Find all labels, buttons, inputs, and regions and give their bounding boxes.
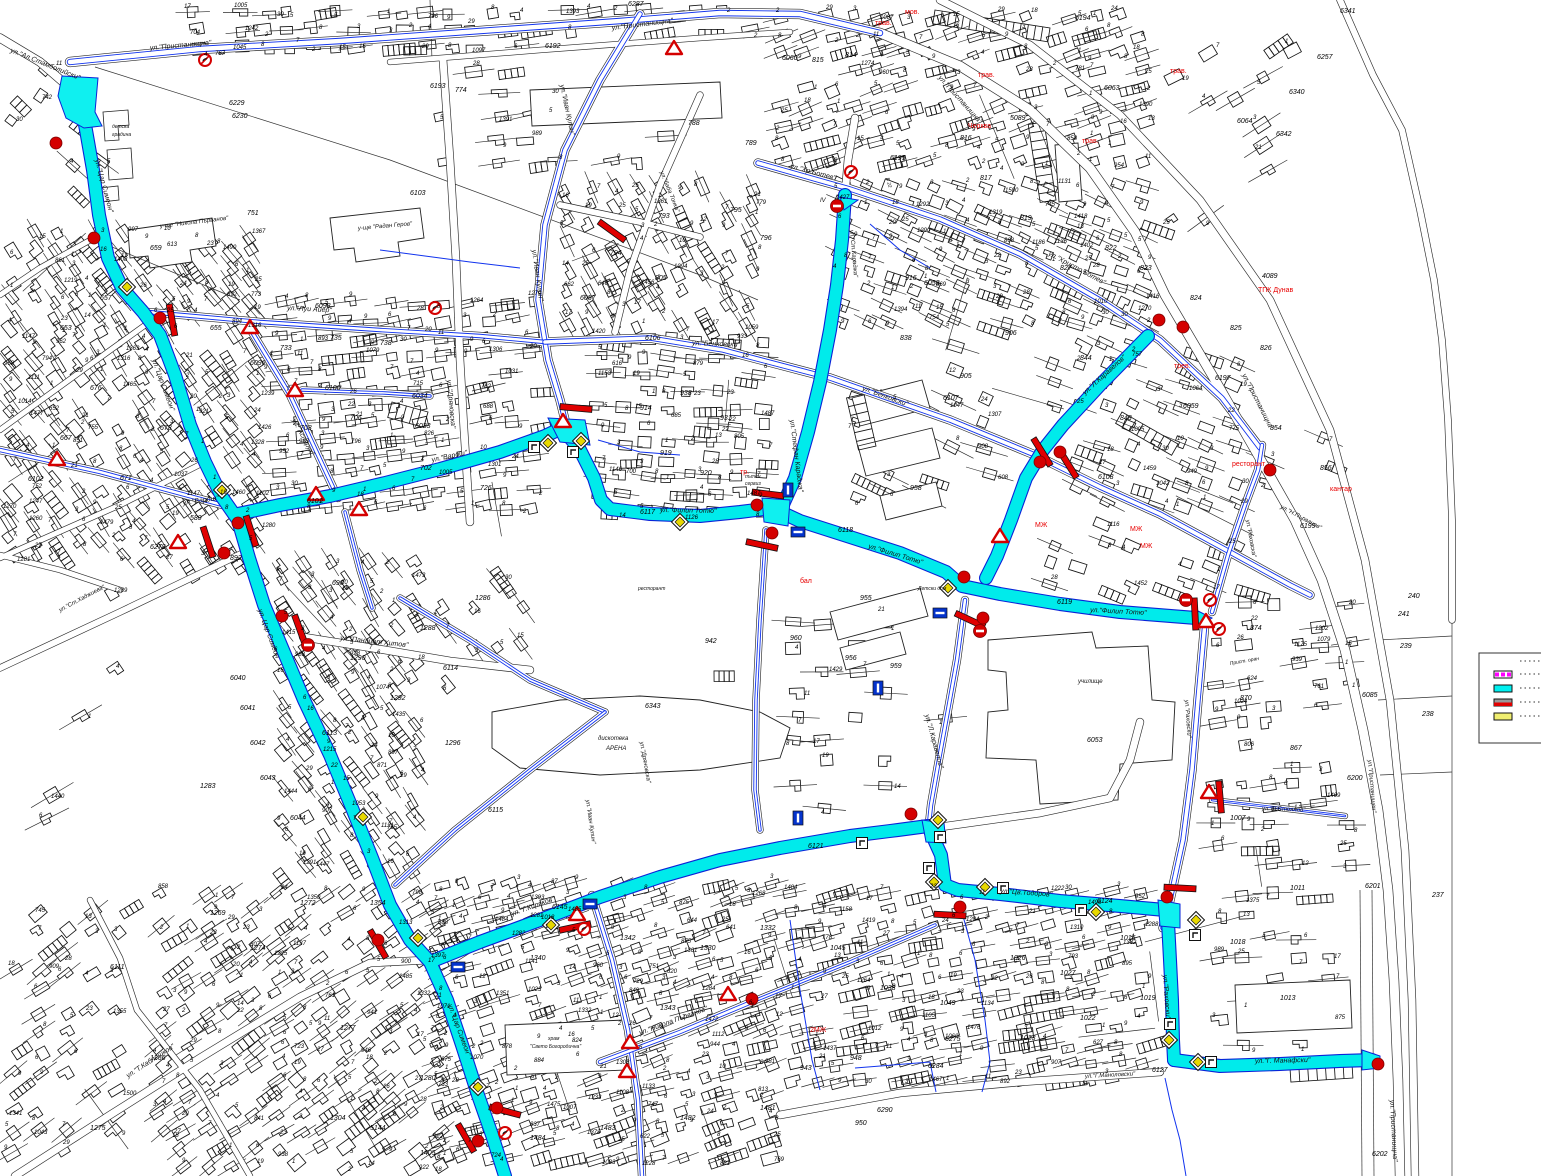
svg-text:10: 10 [480, 445, 487, 451]
svg-text:1239: 1239 [261, 391, 275, 397]
svg-text:861: 861 [55, 258, 65, 264]
svg-text:641: 641 [726, 925, 736, 931]
svg-text:1415: 1415 [282, 630, 296, 636]
svg-text:2: 2 [554, 1075, 559, 1081]
svg-text:29: 29 [825, 5, 833, 11]
svg-text:25: 25 [901, 217, 909, 223]
svg-text:2: 2 [866, 281, 871, 287]
svg-text:15: 15 [343, 776, 350, 782]
svg-text:1: 1 [511, 1098, 514, 1104]
svg-text:2: 2 [347, 730, 352, 736]
svg-text:733: 733 [280, 345, 292, 352]
svg-text:22: 22 [330, 763, 338, 769]
svg-text:960: 960 [790, 635, 802, 642]
svg-text:1228: 1228 [642, 1161, 656, 1167]
svg-text:1: 1 [1244, 1003, 1247, 1009]
svg-text:794: 794 [610, 250, 622, 257]
svg-text:19: 19 [1240, 382, 1247, 388]
svg-text:дискотека: дискотека [598, 736, 629, 742]
svg-text:23: 23 [60, 316, 68, 322]
svg-text:2: 2 [620, 1108, 625, 1114]
svg-text:2: 2 [1260, 483, 1265, 489]
svg-text:1247: 1247 [29, 499, 43, 505]
svg-text:АРЕНА: АРЕНА [605, 746, 626, 752]
svg-text:968: 968 [4, 361, 15, 367]
svg-text:895: 895 [1122, 961, 1133, 967]
svg-text:919: 919 [660, 450, 672, 457]
svg-text:821: 821 [720, 1161, 730, 1167]
svg-text:18: 18 [1031, 8, 1038, 14]
svg-text:2: 2 [389, 667, 394, 673]
svg-text:16: 16 [277, 668, 284, 674]
svg-text:738: 738 [380, 340, 392, 347]
svg-text:938: 938 [278, 1152, 289, 1158]
svg-text:6121: 6121 [808, 843, 824, 850]
svg-text:1019: 1019 [1140, 995, 1156, 1002]
svg-text:2: 2 [159, 925, 164, 931]
svg-text:2: 2 [1025, 939, 1030, 945]
svg-text:6145: 6145 [552, 904, 568, 911]
svg-text:1005: 1005 [234, 3, 248, 9]
svg-text:949: 949 [1187, 469, 1198, 475]
svg-text:1: 1 [156, 543, 159, 549]
svg-text:25: 25 [721, 917, 729, 923]
svg-text:2: 2 [1052, 61, 1057, 67]
svg-text:23: 23 [726, 390, 734, 396]
svg-text:6287: 6287 [628, 1, 645, 8]
svg-text:6044: 6044 [290, 815, 306, 822]
svg-text:1281: 1281 [17, 557, 30, 563]
svg-text:6103: 6103 [410, 190, 426, 197]
svg-text:19: 19 [228, 282, 235, 288]
svg-text:1289: 1289 [114, 588, 128, 594]
svg-text:849: 849 [629, 988, 640, 994]
svg-text:1316: 1316 [117, 356, 131, 362]
svg-text:2: 2 [775, 8, 780, 14]
svg-text:1047: 1047 [950, 403, 964, 409]
svg-text:25: 25 [1084, 256, 1092, 262]
svg-text:2: 2 [909, 284, 914, 290]
svg-text:858: 858 [158, 884, 169, 890]
svg-text:2: 2 [379, 589, 384, 595]
svg-text:676: 676 [90, 385, 102, 392]
svg-text:1: 1 [10, 283, 13, 289]
svg-text:939: 939 [1292, 657, 1303, 663]
svg-text:238: 238 [1421, 711, 1434, 718]
svg-text:1467: 1467 [929, 1077, 943, 1083]
svg-text:793: 793 [658, 213, 670, 220]
svg-text:2: 2 [855, 33, 860, 39]
svg-text:1275: 1275 [90, 1125, 106, 1132]
svg-text:2: 2 [420, 456, 425, 462]
svg-text:620: 620 [667, 969, 678, 975]
svg-text:ресторант: ресторант [1232, 461, 1266, 468]
svg-text:779: 779 [756, 200, 767, 206]
svg-text:1288: 1288 [420, 625, 436, 632]
svg-text:14: 14 [368, 1161, 375, 1167]
svg-text:2: 2 [1146, 318, 1151, 324]
svg-text:1277: 1277 [340, 1025, 357, 1032]
svg-text:17: 17 [775, 994, 782, 1000]
svg-text:1: 1 [887, 972, 890, 978]
svg-text:1146: 1146 [609, 467, 623, 473]
svg-text:1116: 1116 [1107, 522, 1120, 528]
svg-text:1479: 1479 [100, 520, 114, 526]
svg-text:1475: 1475 [547, 1102, 561, 1108]
svg-text:16: 16 [742, 353, 749, 359]
svg-text:1288: 1288 [1145, 922, 1159, 928]
svg-text:кантар: кантар [1330, 486, 1352, 493]
svg-text:1408: 1408 [114, 257, 128, 263]
svg-text:745: 745 [35, 908, 46, 914]
svg-text:1477: 1477 [30, 411, 44, 417]
svg-text:997: 997 [128, 227, 139, 233]
svg-text:755: 755 [88, 425, 99, 431]
svg-text:25: 25 [254, 277, 262, 283]
svg-text:1: 1 [666, 475, 669, 481]
svg-text:854: 854 [1270, 425, 1282, 432]
svg-text:989: 989 [1214, 947, 1225, 953]
svg-text:20: 20 [1348, 600, 1356, 606]
svg-text:6342: 6342 [1276, 131, 1292, 138]
svg-text:2: 2 [726, 8, 731, 14]
svg-text:28: 28 [451, 1078, 459, 1084]
svg-text:24: 24 [179, 281, 187, 287]
svg-text:1007: 1007 [1230, 815, 1247, 822]
svg-text:2: 2 [720, 265, 725, 271]
svg-text:867: 867 [1290, 745, 1303, 752]
svg-text:2МЖ: 2МЖ [810, 1027, 827, 1034]
svg-text:6199: 6199 [1300, 523, 1316, 530]
svg-text:МЖ: МЖ [1130, 526, 1143, 533]
svg-text:806: 806 [1244, 742, 1255, 748]
svg-text:23: 23 [242, 925, 250, 931]
svg-text:29: 29 [421, 44, 429, 50]
svg-text:6108: 6108 [1098, 474, 1114, 481]
svg-text:1472: 1472 [705, 1017, 719, 1023]
svg-text:17: 17 [184, 4, 191, 10]
svg-text:1363: 1363 [126, 346, 140, 352]
svg-text:1158: 1158 [839, 907, 853, 913]
svg-text:1037: 1037 [174, 472, 188, 478]
svg-text:2: 2 [373, 1079, 378, 1085]
svg-text:6059: 6059 [1183, 403, 1199, 410]
svg-text:1: 1 [300, 337, 303, 343]
svg-text:1: 1 [186, 924, 189, 930]
svg-text:1418: 1418 [1074, 214, 1088, 220]
svg-text:14: 14 [562, 261, 569, 267]
svg-text:900: 900 [401, 959, 412, 965]
svg-text:11: 11 [985, 1074, 991, 1080]
svg-text:12: 12 [479, 974, 486, 980]
svg-text:1: 1 [1203, 495, 1206, 501]
svg-text:6201: 6201 [1365, 883, 1381, 890]
svg-text:6230: 6230 [232, 113, 248, 120]
svg-text:1: 1 [891, 626, 894, 632]
svg-text:742: 742 [42, 95, 53, 101]
svg-text:1: 1 [1102, 1023, 1105, 1029]
svg-text:848: 848 [1120, 415, 1132, 422]
svg-text:6106: 6106 [645, 335, 661, 342]
svg-text:1: 1 [864, 200, 867, 206]
svg-text:трав.: трав. [875, 20, 892, 27]
svg-text:1419: 1419 [862, 918, 876, 924]
svg-text:1042: 1042 [1156, 481, 1170, 487]
svg-text:1296: 1296 [445, 740, 461, 747]
svg-text:25: 25 [631, 183, 639, 189]
svg-text:19: 19 [822, 753, 829, 759]
svg-text:1481: 1481 [760, 1105, 776, 1112]
svg-text:1: 1 [1045, 161, 1048, 167]
svg-text:894: 894 [232, 319, 243, 325]
svg-text:1460: 1460 [232, 490, 246, 496]
svg-text:24: 24 [980, 397, 988, 403]
svg-text:28: 28 [711, 459, 719, 465]
svg-text:11: 11 [804, 691, 810, 697]
svg-text:1292: 1292 [916, 202, 930, 208]
svg-text:1023: 1023 [1020, 1035, 1036, 1042]
svg-text:778: 778 [822, 935, 833, 941]
svg-text:29: 29 [995, 294, 1003, 300]
svg-text:616: 616 [612, 361, 623, 367]
svg-text:729: 729 [633, 979, 644, 985]
svg-text:16: 16 [1120, 119, 1127, 125]
svg-text:906: 906 [1005, 330, 1017, 337]
svg-text:26: 26 [349, 389, 357, 395]
svg-text:30: 30 [552, 89, 559, 95]
svg-text:1: 1 [1142, 984, 1145, 990]
svg-text:28: 28 [416, 306, 424, 312]
svg-text:2: 2 [1091, 992, 1096, 998]
svg-text:657: 657 [100, 295, 113, 302]
svg-text:1290: 1290 [917, 228, 931, 234]
svg-text:6193: 6193 [430, 83, 446, 90]
svg-text:589: 589 [190, 515, 202, 522]
svg-text:893: 893 [318, 336, 329, 342]
svg-text:817: 817 [980, 175, 993, 182]
svg-text:907: 907 [322, 808, 333, 814]
svg-text:1354: 1354 [370, 900, 386, 907]
svg-text:652: 652 [49, 406, 60, 412]
svg-text:1045: 1045 [233, 45, 247, 51]
svg-text:1268: 1268 [752, 891, 766, 897]
svg-text:773: 773 [251, 292, 262, 298]
svg-text:22: 22 [236, 1008, 244, 1014]
svg-text:18: 18 [366, 1055, 373, 1061]
svg-text:1: 1 [1078, 48, 1081, 54]
svg-text:1: 1 [1294, 805, 1297, 811]
svg-text:1031: 1031 [505, 369, 518, 375]
svg-text:ул."Г. Манафски": ул."Г. Манафски" [1254, 1057, 1311, 1065]
svg-text:1071: 1071 [437, 1004, 450, 1010]
svg-text:30: 30 [1065, 885, 1072, 891]
svg-text:6202: 6202 [1372, 1151, 1388, 1158]
svg-text:6200: 6200 [1347, 775, 1363, 782]
svg-text:983: 983 [295, 652, 306, 658]
svg-text:ул."Филип Тотю": ул."Филип Тотю" [659, 507, 717, 515]
svg-text:905: 905 [960, 373, 972, 380]
svg-text:1: 1 [1052, 257, 1055, 263]
svg-text:1328: 1328 [251, 440, 265, 446]
svg-text:897: 897 [388, 750, 399, 756]
svg-text:21: 21 [599, 1064, 607, 1070]
svg-text:237: 237 [1431, 892, 1445, 899]
svg-text:2: 2 [181, 1008, 186, 1014]
svg-text:6034: 6034 [412, 393, 428, 400]
svg-text:2: 2 [439, 1105, 444, 1111]
svg-text:1496: 1496 [1088, 900, 1102, 906]
svg-text:30: 30 [505, 575, 512, 581]
svg-text:1225: 1225 [274, 951, 288, 957]
svg-text:13: 13 [834, 953, 841, 959]
svg-text:796: 796 [428, 14, 439, 20]
svg-text:1: 1 [956, 242, 959, 248]
svg-text:трав.: трав. [1082, 138, 1099, 145]
svg-text:14: 14 [894, 784, 901, 790]
svg-text:17: 17 [1099, 460, 1106, 466]
svg-text:1476: 1476 [967, 1025, 981, 1031]
svg-text:1: 1 [387, 9, 390, 15]
svg-text:2: 2 [513, 1066, 518, 1072]
svg-text:892: 892 [1000, 1079, 1011, 1085]
svg-text:24: 24 [511, 454, 519, 460]
svg-text:2: 2 [408, 23, 413, 29]
svg-text:1264: 1264 [470, 298, 484, 304]
svg-text:1131: 1131 [1058, 179, 1071, 185]
svg-text:12: 12 [1302, 861, 1309, 867]
svg-text:1: 1 [959, 1052, 962, 1058]
svg-text:6113: 6113 [322, 730, 337, 737]
svg-text:21: 21 [753, 192, 761, 198]
svg-text:16: 16 [744, 950, 751, 956]
svg-text:1286: 1286 [475, 595, 491, 602]
svg-text:1112: 1112 [712, 1032, 725, 1038]
svg-text:6192: 6192 [545, 43, 561, 50]
svg-text:700: 700 [626, 469, 637, 475]
svg-text:26: 26 [1025, 974, 1033, 980]
svg-text:1: 1 [515, 1086, 518, 1092]
svg-text:798: 798 [412, 890, 423, 896]
svg-text:723: 723 [294, 1044, 305, 1050]
svg-text:958: 958 [910, 485, 922, 492]
svg-text:688: 688 [483, 404, 494, 410]
svg-text:794: 794 [42, 356, 53, 362]
svg-text:10: 10 [679, 238, 686, 244]
svg-text:6042: 6042 [250, 740, 266, 747]
svg-text:28: 28 [1022, 290, 1030, 296]
svg-text:2: 2 [1146, 86, 1151, 92]
svg-text:1332: 1332 [578, 1008, 592, 1014]
svg-text:989: 989 [532, 131, 543, 137]
svg-text:1456: 1456 [641, 280, 655, 286]
svg-text:1: 1 [939, 720, 942, 726]
svg-text:2: 2 [471, 1044, 476, 1050]
svg-text:2: 2 [245, 508, 250, 514]
svg-text:1111: 1111 [28, 375, 40, 381]
svg-text:1291: 1291 [303, 860, 316, 866]
svg-text:6341: 6341 [1340, 8, 1356, 15]
svg-text:914: 914 [640, 405, 652, 412]
svg-text:21: 21 [185, 353, 193, 359]
svg-text:1007: 1007 [563, 1105, 577, 1111]
svg-text:825: 825 [1230, 325, 1242, 332]
svg-text:20: 20 [424, 327, 432, 333]
svg-text:2: 2 [389, 623, 394, 629]
svg-text:23: 23 [279, 1130, 287, 1136]
svg-text:30: 30 [1162, 446, 1169, 452]
svg-text:871: 871 [377, 763, 387, 769]
svg-text:1402: 1402 [1080, 243, 1094, 249]
svg-text:1500: 1500 [123, 1091, 137, 1097]
svg-text:1014: 1014 [18, 399, 32, 405]
svg-text:30: 30 [16, 117, 23, 123]
svg-text:1378: 1378 [587, 1130, 601, 1136]
svg-text:1316: 1316 [248, 323, 262, 329]
svg-text:28: 28 [1050, 575, 1058, 581]
svg-text:1306: 1306 [489, 347, 503, 353]
svg-text:1012: 1012 [868, 1026, 882, 1032]
svg-text:27: 27 [550, 879, 558, 885]
svg-text:2: 2 [1260, 827, 1265, 833]
svg-text:6063: 6063 [1104, 85, 1120, 92]
svg-text:1420: 1420 [592, 329, 606, 335]
svg-text:2: 2 [1117, 254, 1122, 260]
svg-text:1079: 1079 [366, 348, 380, 354]
svg-text:1452: 1452 [1134, 581, 1148, 587]
svg-text:15: 15 [857, 136, 864, 142]
svg-text:983: 983 [299, 439, 310, 445]
svg-text:14: 14 [619, 513, 626, 519]
svg-text:952: 952 [279, 449, 290, 455]
svg-text:15: 15 [1345, 641, 1352, 647]
svg-text:29: 29 [62, 1140, 70, 1146]
svg-text:1: 1 [1352, 683, 1355, 689]
svg-text:21: 21 [818, 1054, 826, 1060]
svg-text:1459: 1459 [1143, 466, 1157, 472]
svg-text:685: 685 [671, 413, 682, 419]
svg-text:1: 1 [545, 924, 548, 930]
svg-text:1: 1 [665, 438, 668, 444]
svg-text:816: 816 [960, 135, 972, 142]
svg-text:23: 23 [206, 241, 214, 247]
svg-text:622: 622 [640, 1134, 651, 1140]
svg-text:1330: 1330 [700, 945, 716, 952]
svg-text:6064: 6064 [1237, 118, 1253, 125]
svg-text:1064: 1064 [1189, 386, 1203, 392]
svg-text:2: 2 [236, 945, 241, 951]
svg-text:981: 981 [765, 1059, 775, 1065]
svg-text:708: 708 [300, 425, 312, 432]
svg-text:1005: 1005 [439, 470, 453, 476]
svg-text:1: 1 [1093, 11, 1096, 17]
svg-text:27: 27 [414, 1076, 422, 1082]
svg-text:30: 30 [865, 1079, 872, 1085]
svg-text:665: 665 [1271, 807, 1282, 813]
svg-text:884: 884 [534, 1058, 545, 1064]
svg-text:6343: 6343 [645, 703, 661, 710]
svg-text:1440: 1440 [51, 794, 65, 800]
svg-text:15: 15 [953, 12, 960, 18]
svg-text:1011: 1011 [1290, 885, 1305, 892]
svg-text:14: 14 [237, 1001, 244, 1007]
svg-text:789: 789 [745, 140, 757, 147]
svg-text:12: 12 [949, 368, 956, 374]
svg-text:2: 2 [617, 1021, 622, 1027]
svg-text:18: 18 [928, 995, 935, 1001]
svg-text:1: 1 [434, 610, 437, 616]
svg-text:761: 761 [325, 993, 335, 999]
svg-text:16: 16 [474, 609, 481, 615]
